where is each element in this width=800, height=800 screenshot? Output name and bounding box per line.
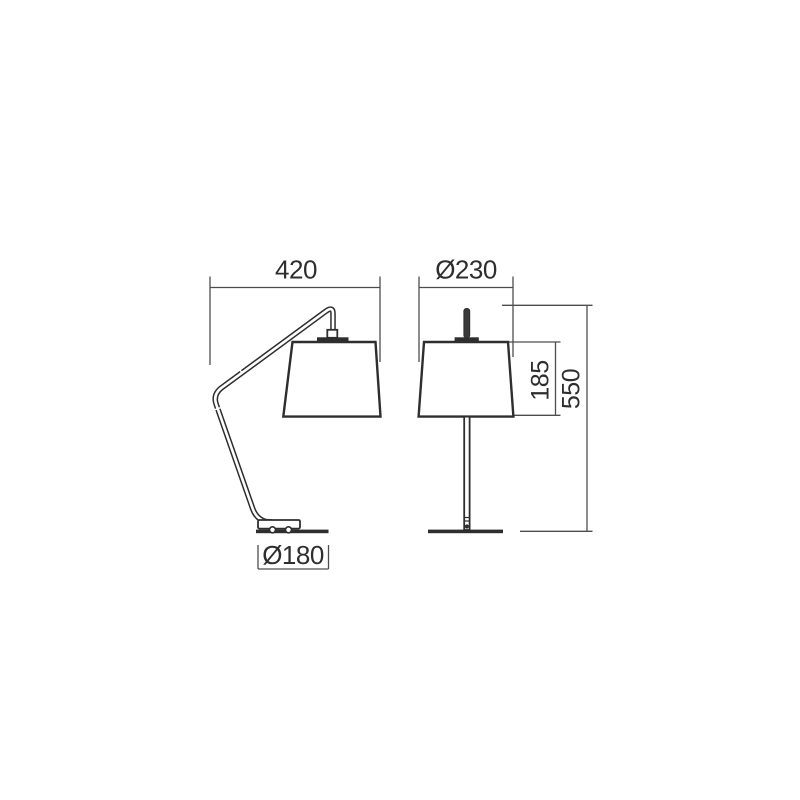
dimension-shade-height: 185: [509, 342, 561, 415]
front-view: Ø230 550 185: [419, 255, 593, 534]
dim-label-base-diameter: Ø180: [262, 540, 324, 570]
dimension-base-diameter: Ø180: [258, 540, 329, 570]
stem: [464, 417, 469, 530]
base-plate: [428, 530, 503, 534]
lamp-shade: [283, 342, 380, 417]
socket: [327, 330, 337, 338]
lamp-technical-drawing: 420 Ø180: [0, 0, 800, 800]
lamp-shade: [419, 342, 514, 417]
dim-label-arm-reach: 420: [275, 255, 317, 285]
screw: [270, 527, 276, 533]
dim-label-shade-diameter: Ø230: [435, 255, 497, 285]
drawing-canvas: 420 Ø180: [0, 0, 800, 800]
dim-label-shade-height: 185: [527, 360, 555, 400]
dimension-total-height: 550: [502, 305, 593, 531]
finial: [464, 309, 470, 338]
clamp-bracket: [258, 520, 300, 529]
stem-joint-ball: [465, 524, 469, 528]
dim-label-total-height: 550: [558, 369, 586, 409]
screw: [286, 527, 292, 533]
side-view: 420 Ø180: [210, 255, 381, 571]
